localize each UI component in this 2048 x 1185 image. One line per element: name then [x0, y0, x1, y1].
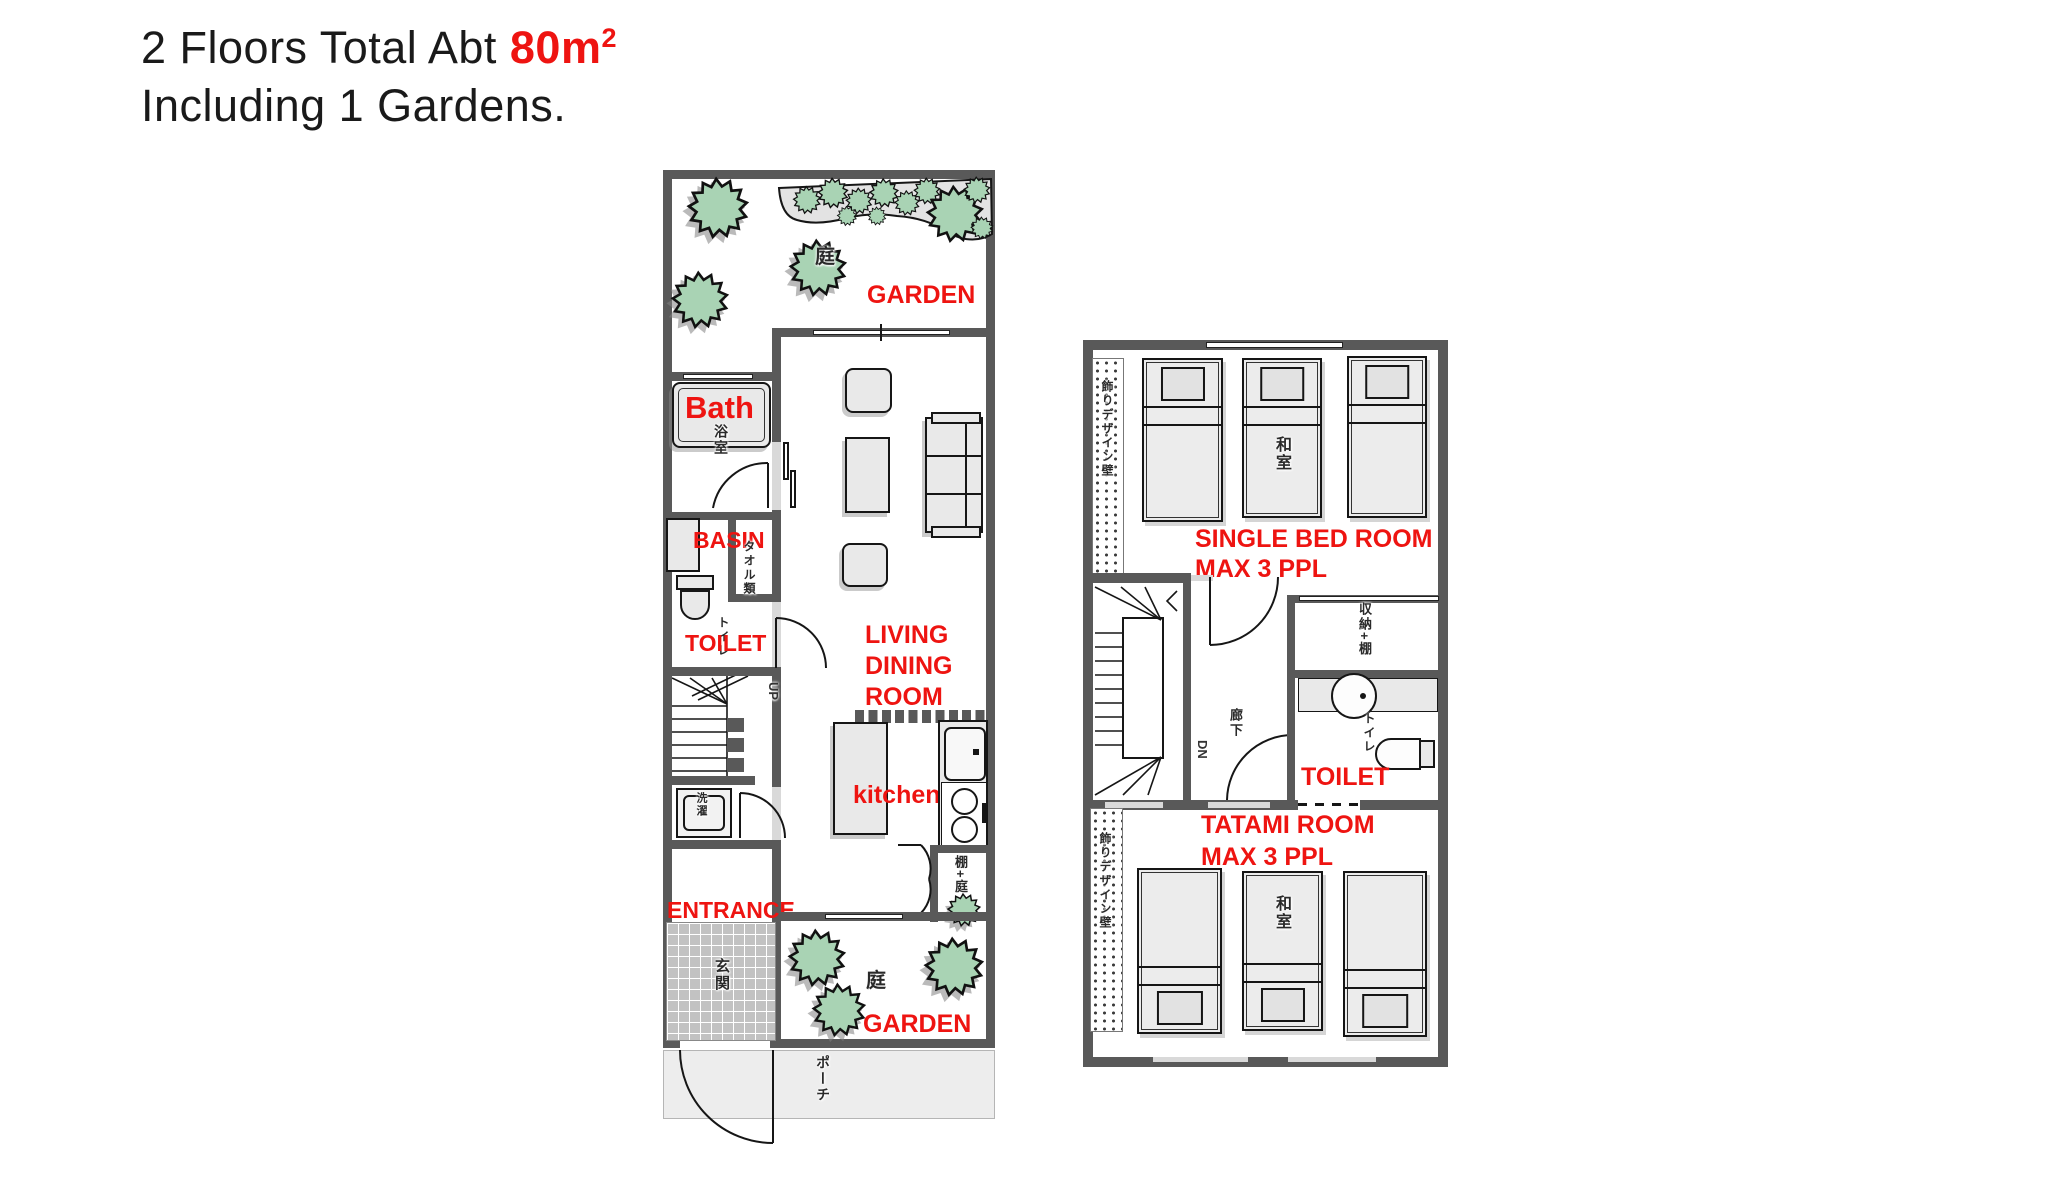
wall	[728, 512, 736, 602]
laundry-door-arc	[737, 790, 793, 842]
shelf-garden-closet-kanji: 棚+庭	[951, 855, 970, 895]
wall	[1183, 573, 1191, 810]
sofa-armrest	[931, 412, 981, 424]
garden-bottom-tree-kanji: 庭	[866, 964, 886, 993]
single-bed	[1347, 356, 1427, 518]
stair-wall-segments	[727, 718, 744, 776]
ldk-line2: DINING	[865, 651, 953, 682]
sofa-armrest	[931, 526, 981, 538]
stool	[845, 368, 892, 413]
page-title-line2: Including 1 Gardens.	[141, 80, 566, 132]
toilet1-label: TOILET	[685, 631, 766, 655]
tree-icon	[812, 983, 866, 1037]
floor2-plan: 飾りデザイン壁 和室 SINGLE BED ROOM MAX 3 PPL	[1083, 340, 1448, 1067]
toilet-bowl	[680, 590, 710, 620]
toilet2-label: TOILET	[1301, 764, 1389, 790]
wall	[930, 845, 995, 853]
kitchen-sink	[944, 727, 986, 781]
wall	[1295, 670, 1448, 678]
ldk-line1: LIVING	[865, 620, 953, 651]
kitchen-counter	[938, 720, 988, 847]
wall	[772, 510, 781, 600]
towel-shelf-kanji: タオル類	[741, 540, 758, 596]
tatami-room-label: TATAMI ROOM	[1201, 812, 1375, 838]
toilet-door-arc	[772, 615, 832, 675]
table	[845, 437, 890, 513]
stairs-up	[672, 676, 772, 776]
garden-top-tree-kanji: 庭	[815, 240, 835, 269]
single-bed-room-label: SINGLE BED ROOM	[1195, 526, 1433, 552]
title-area-exponent: 2	[601, 23, 617, 53]
living-dining-label: LIVING DINING ROOM	[865, 620, 953, 713]
wall	[1083, 1057, 1448, 1067]
tatami-bed	[1343, 871, 1427, 1037]
sliding-door-panel	[783, 442, 789, 480]
hall-door-arc	[1206, 575, 1291, 660]
toilet2-tank	[1419, 740, 1435, 768]
deco-wall-kanji-bottom: 飾りデザイン壁	[1097, 832, 1114, 930]
single-bed	[1142, 358, 1223, 522]
entrance-door-arc	[675, 1048, 780, 1148]
stove	[941, 782, 987, 847]
window	[1206, 342, 1343, 348]
toilet-cistern	[676, 575, 714, 590]
stairs-down-label: DN	[1195, 740, 1210, 759]
title-area-value: 80m2	[510, 22, 617, 73]
single-room-kanji: 和室	[1269, 436, 1293, 472]
dashed-wall-opening	[1298, 800, 1360, 810]
laundry-kanji: 洗濯	[693, 792, 709, 818]
door-threshold	[1288, 1057, 1376, 1062]
kitchen-island	[833, 722, 888, 835]
floor1-plan: ポーチ 庭 GARD	[663, 170, 995, 1119]
porch-kanji: ポーチ	[813, 1055, 833, 1103]
tatami-room-kanji: 和室	[1269, 895, 1293, 931]
bush-icon	[947, 893, 981, 927]
tatami-room-max-label: MAX 3 PPL	[1201, 844, 1333, 870]
stairs-down	[1093, 583, 1183, 800]
window	[825, 914, 903, 919]
wall	[1083, 573, 1190, 583]
garden-bottom-label: GARDEN	[863, 1011, 971, 1037]
sofa	[925, 417, 983, 533]
window-tick	[880, 324, 882, 341]
sliding-door-panel	[790, 470, 796, 508]
wall	[1287, 595, 1295, 800]
entrance-kanji: 玄関	[711, 958, 732, 992]
wall	[663, 840, 781, 849]
bath-door-arc	[663, 170, 783, 520]
storage-kanji: 収納+棚	[1355, 602, 1374, 657]
floorplan-page: 2 Floors Total Abt 80m2 Including 1 Gard…	[0, 0, 2048, 1185]
deco-wall-kanji-top: 飾りデザイン壁	[1099, 380, 1116, 478]
tree-icon	[788, 929, 846, 987]
entrance-label: ENTRANCE	[667, 898, 795, 922]
double-door-arcs	[891, 842, 937, 918]
closet-sliding-door	[1299, 596, 1439, 601]
title-text: 2 Floors Total Abt	[141, 22, 497, 73]
garden-top-label: GARDEN	[867, 282, 975, 308]
page-title-line1: 2 Floors Total Abt 80m2	[141, 22, 617, 74]
wall	[1438, 340, 1448, 1067]
wall	[770, 1039, 995, 1048]
wall	[663, 667, 772, 676]
door-threshold	[1153, 1057, 1248, 1062]
tree-icon	[924, 937, 984, 997]
kitchen-label: kitchen	[853, 782, 941, 808]
stool	[842, 543, 888, 587]
tatami-bed	[1137, 868, 1222, 1034]
ldk-line3: ROOM	[865, 682, 953, 713]
stairs-up-label: UP	[766, 682, 781, 700]
wall	[663, 776, 755, 785]
hedge-bed	[777, 176, 995, 248]
